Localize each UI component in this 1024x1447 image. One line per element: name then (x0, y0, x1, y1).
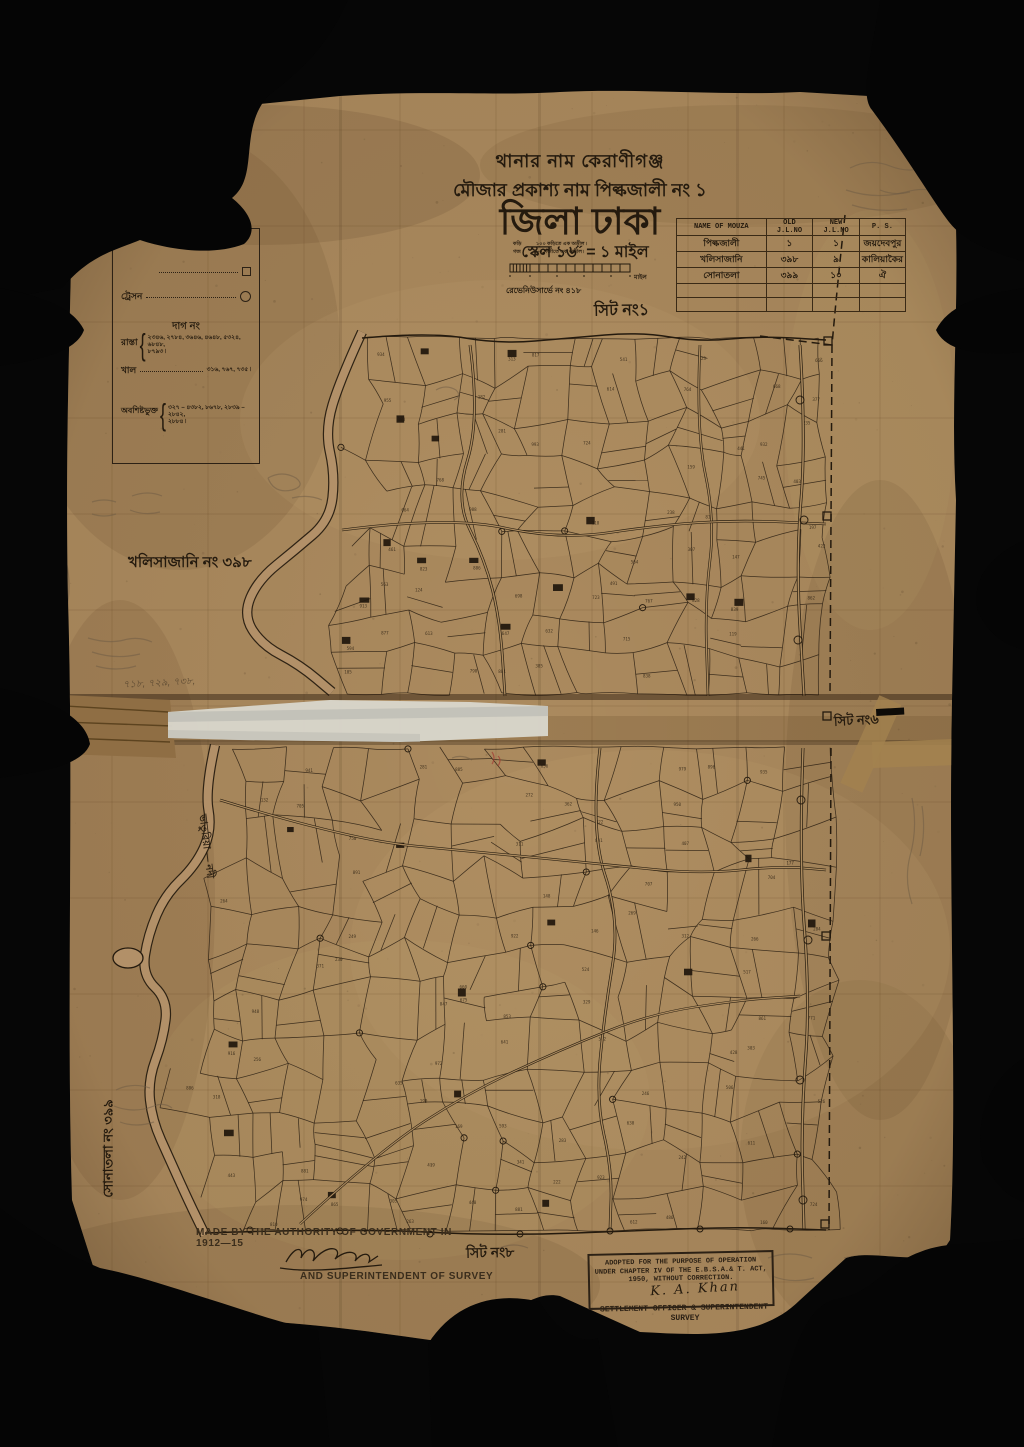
svg-text:461: 461 (388, 547, 396, 552)
mouza-table: NAME OF MOUZA OLD J.L.NO NEW J.L.NO P. S… (676, 218, 906, 312)
thana-title: থানার নাম কেরাণীগঞ্জ (440, 147, 720, 178)
svg-text:767: 767 (645, 598, 653, 603)
svg-text:329: 329 (583, 1000, 591, 1005)
svg-text:132: 132 (261, 797, 269, 802)
svg-text:839: 839 (731, 607, 739, 612)
svg-text:593: 593 (499, 1124, 507, 1129)
new-jl: ৯ (813, 252, 860, 268)
svg-text:269: 269 (628, 911, 636, 916)
svg-text:524: 524 (582, 967, 590, 972)
old-jl: ১ (766, 236, 813, 252)
svg-text:594: 594 (347, 646, 355, 651)
svg-text:704: 704 (768, 875, 776, 880)
svg-text:838: 838 (643, 673, 651, 678)
svg-text:517: 517 (743, 970, 751, 975)
sheet-number-8: সিট নং৮ (466, 1240, 546, 1265)
svg-text:362: 362 (565, 801, 573, 806)
svg-text:935: 935 (760, 769, 768, 774)
ps-value: জয়দেবপুর (859, 236, 905, 252)
svg-text:724: 724 (810, 1202, 818, 1207)
svg-text:385: 385 (535, 664, 543, 669)
svg-text:611: 611 (748, 1141, 756, 1146)
legend-title: সূচক (199, 219, 226, 243)
svg-text:169: 169 (455, 1124, 463, 1129)
scanned-cadastral-map: 9343138175413236669551826147646683771832… (0, 0, 1024, 1447)
svg-text:148: 148 (543, 894, 551, 899)
svg-text:249: 249 (349, 934, 357, 939)
svg-text:407: 407 (682, 841, 690, 846)
scale-unit-left-1: কড়ি (513, 241, 522, 249)
svg-text:817: 817 (532, 353, 540, 358)
svg-text:443: 443 (228, 1173, 236, 1178)
svg-text:666: 666 (815, 358, 823, 363)
old-jl: ৩৯৯ (766, 268, 813, 284)
ps-value: কালিয়াকৈর (859, 252, 905, 268)
svg-text:341: 341 (517, 1159, 525, 1164)
svg-text:641: 641 (501, 1040, 509, 1045)
svg-text:647: 647 (502, 631, 510, 636)
svg-text:668: 668 (773, 384, 781, 389)
col-ps: P. S. (859, 219, 905, 236)
svg-text:403: 403 (793, 479, 801, 484)
svg-text:313: 313 (508, 356, 516, 361)
svg-text:955: 955 (384, 398, 392, 403)
svg-text:724: 724 (583, 440, 591, 445)
svg-text:877: 877 (381, 631, 389, 636)
svg-text:932: 932 (760, 442, 768, 447)
scale-caption-1: ১০০ কড়িতে এক অড়ীল ৷ (536, 241, 656, 249)
road-label: রাস্তা (121, 335, 138, 350)
svg-text:440: 440 (469, 1200, 477, 1205)
svg-text:612: 612 (630, 1220, 638, 1225)
svg-text:147: 147 (732, 555, 740, 560)
svg-text:948: 948 (252, 1009, 260, 1014)
col-new-jl-no: NEW J.L.NO (813, 219, 860, 236)
brown-tape-horizontal (872, 739, 967, 768)
circle-symbol-icon (240, 291, 251, 302)
svg-text:764: 764 (684, 387, 692, 392)
made-by-line: MADE BY THE AUTHORITY OF GOVERNMENT IN 1… (196, 1227, 476, 1249)
svg-text:272: 272 (526, 792, 534, 797)
svg-text:675: 675 (460, 998, 468, 1003)
svg-text:885: 885 (455, 767, 463, 772)
old-jl: ৩৯৮ (766, 252, 813, 268)
svg-text:881: 881 (515, 1207, 523, 1212)
svg-text:222: 222 (553, 1180, 561, 1185)
svg-text:798: 798 (470, 668, 478, 673)
new-jl: ১ (813, 236, 860, 252)
svg-text:913: 913 (360, 603, 368, 608)
khal-label: খাল (121, 363, 136, 378)
svg-text:916: 916 (228, 1051, 236, 1056)
remainder-numbers: ৩২৭ – ৪৩৮২, ৮৬৭৮, ২৮৩৯ – ২৮৪২, (168, 405, 245, 418)
svg-text:865: 865 (331, 1202, 339, 1207)
svg-text:238: 238 (667, 510, 675, 515)
table-row: খলিসাজানি ৩৯৮ ৯ কালিয়াকৈর (677, 252, 906, 268)
svg-text:715: 715 (623, 637, 631, 642)
svg-text:119: 119 (729, 632, 737, 637)
scale-unit-right: মাইল (634, 272, 647, 283)
svg-text:922: 922 (511, 933, 519, 938)
svg-text:281: 281 (498, 429, 506, 434)
svg-text:630: 630 (627, 1121, 635, 1126)
svg-text:441: 441 (737, 446, 745, 451)
ps-value: ঐ (859, 268, 905, 284)
station-label: ট্রেসন (121, 289, 142, 304)
svg-text:281: 281 (420, 764, 428, 769)
svg-text:428: 428 (730, 1050, 738, 1055)
svg-text:264: 264 (220, 899, 228, 904)
svg-text:230: 230 (335, 957, 343, 962)
remainder-label: অবশিষ্টভুক্ত (121, 405, 158, 418)
svg-text:541: 541 (620, 357, 628, 362)
svg-text:283: 283 (559, 1138, 567, 1143)
svg-text:723: 723 (592, 595, 600, 600)
svg-text:993: 993 (531, 442, 539, 447)
table-row-empty (677, 284, 906, 298)
scale-unit-left-2: গজ (513, 249, 521, 257)
svg-text:614: 614 (607, 386, 615, 391)
svg-text:159: 159 (687, 464, 695, 469)
svg-text:182: 182 (478, 394, 486, 399)
svg-text:886: 886 (186, 1086, 194, 1091)
svg-text:823: 823 (420, 567, 428, 572)
svg-text:896: 896 (708, 765, 716, 770)
khal-numbers: ৩১৬, ৭৬৭, ৭৩৫ ৷ (207, 367, 251, 374)
svg-text:491: 491 (610, 581, 618, 586)
svg-text:563: 563 (381, 582, 389, 587)
mouza-name: সোনাতলা (677, 268, 767, 284)
svg-text:190: 190 (420, 1099, 428, 1104)
svg-text:923: 923 (597, 1175, 605, 1180)
svg-text:105: 105 (344, 670, 352, 675)
square-symbol-icon (242, 267, 251, 276)
svg-text:146: 146 (591, 929, 599, 934)
table-row-empty (677, 298, 906, 312)
mouza-name: খলিসাজানি (677, 252, 767, 268)
svg-text:974: 974 (300, 1197, 308, 1202)
svg-text:263: 263 (406, 1219, 414, 1224)
brace-icon: { (140, 328, 146, 364)
svg-text:861: 861 (759, 1016, 767, 1021)
khalisajani-label: খলিসাজানি নং ৩৯৮ (128, 551, 298, 576)
svg-text:303: 303 (747, 1045, 755, 1050)
svg-text:768: 768 (437, 478, 445, 483)
svg-text:705: 705 (297, 804, 305, 809)
svg-text:891: 891 (353, 870, 361, 875)
svg-text:707: 707 (645, 882, 653, 887)
svg-text:197: 197 (809, 525, 817, 530)
remainder-numbers: ২৮৮৪ ৷ (168, 419, 186, 425)
svg-text:862: 862 (808, 596, 816, 601)
svg-text:613: 613 (425, 631, 433, 636)
legend-box: সূচক ট্রেসন দাগ নং রাস্তা { ২৩৪৬, ২৭৮৪, … (112, 228, 260, 464)
svg-text:256: 256 (254, 1057, 262, 1062)
survey-line: SURVEY (640, 1314, 730, 1323)
svg-text:664: 664 (401, 507, 409, 512)
svg-text:934: 934 (377, 352, 385, 357)
svg-text:745: 745 (758, 475, 766, 480)
svg-text:886: 886 (473, 565, 481, 570)
svg-text:941: 941 (305, 768, 313, 773)
superintendent-line: AND SUPERINTENDENT OF SURVEY (300, 1271, 520, 1282)
svg-text:177: 177 (786, 860, 794, 865)
table-row: সোনাতলা ৩৯৯ ১০ ঐ (677, 268, 906, 284)
svg-text:160: 160 (760, 1220, 768, 1225)
svg-text:318: 318 (213, 1094, 221, 1099)
brace-icon: { (160, 398, 166, 434)
mouza-name: পিল্কজালী (677, 236, 767, 252)
col-old-jl-no: OLD J.L.NO (766, 219, 813, 236)
svg-text:988: 988 (469, 507, 477, 512)
new-jl: ১০ (813, 268, 860, 284)
svg-text:242: 242 (679, 1155, 687, 1160)
col-name-of-mouza: NAME OF MOUZA (677, 219, 767, 236)
svg-text:266: 266 (751, 936, 759, 941)
table-row: পিল্কজালী ১ ১ জয়দেবপুর (677, 236, 906, 252)
svg-text:307: 307 (688, 547, 696, 552)
svg-text:377: 377 (812, 397, 820, 402)
svg-text:124: 124 (415, 588, 423, 593)
svg-text:632: 632 (545, 628, 553, 633)
road-numbers: ৮৭৯৩ ৷ (148, 349, 166, 355)
svg-text:371: 371 (317, 964, 325, 969)
svg-text:881: 881 (301, 1168, 309, 1173)
road-numbers: ২৩৪৬, ২৭৮৪, ৩৬৪৬, ৪৬৪৮, ৫৩২৪, ৬৮৪৮, (148, 335, 241, 348)
plot-number-header: দাগ নং (113, 319, 259, 336)
adoption-stamp: ADOPTED FOR THE PURPOSE OF OPERATION UND… (587, 1250, 774, 1310)
svg-text:506: 506 (726, 1085, 734, 1090)
svg-text:950: 950 (674, 802, 682, 807)
svg-text:246: 246 (642, 1091, 650, 1096)
sonatola-label: সোনাতলা নং ৩৯৯ (100, 1031, 121, 1267)
sheet-number-1: সিট নং১ (594, 296, 684, 325)
sheet-number-6: সিট নং৬ (833, 709, 904, 734)
svg-text:486: 486 (666, 1215, 674, 1220)
svg-text:419: 419 (427, 1163, 435, 1168)
svg-text:979: 979 (679, 767, 687, 772)
svg-text:698: 698 (515, 593, 523, 598)
scale-caption-2: ৮০ গজীতে এক অড়ীল ৷ (536, 249, 656, 257)
